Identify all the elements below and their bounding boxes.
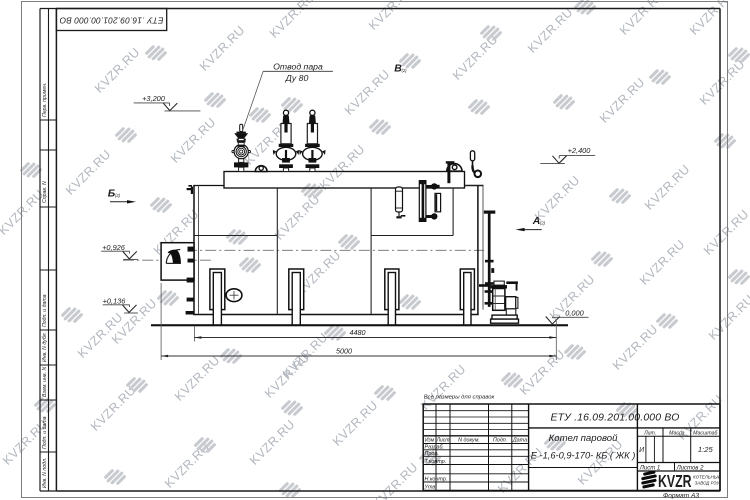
svg-text:KVZR.RU: KVZR.RU bbox=[63, 147, 114, 198]
svg-text:+0,926: +0,926 bbox=[102, 243, 126, 252]
svg-text:KVZR.RU: KVZR.RU bbox=[172, 353, 223, 404]
svg-text:Котел паровой: Котел паровой bbox=[549, 433, 618, 444]
svg-text:Т.контр.: Т.контр. bbox=[425, 459, 447, 465]
svg-text:KVZR: KVZR bbox=[658, 471, 692, 491]
svg-text:KVZR.RU: KVZR.RU bbox=[366, 0, 417, 33]
svg-text:Подп.: Подп. bbox=[493, 438, 507, 444]
svg-text:KVZR.RU: KVZR.RU bbox=[701, 207, 750, 258]
svg-text:+3,200: +3,200 bbox=[142, 94, 166, 103]
svg-text:(2): (2) bbox=[115, 193, 121, 198]
svg-text:KVZR.RU: KVZR.RU bbox=[342, 67, 393, 118]
svg-text:(2): (2) bbox=[540, 221, 546, 226]
svg-text:И: И bbox=[639, 447, 645, 454]
svg-text:Подп. и дата: Подп. и дата bbox=[42, 416, 48, 449]
svg-text:KVZR.RU: KVZR.RU bbox=[575, 437, 626, 488]
svg-text:KVZR.RU: KVZR.RU bbox=[525, 5, 576, 56]
svg-text:KVZR.RU: KVZR.RU bbox=[92, 45, 143, 96]
svg-text:KVZR.RU: KVZR.RU bbox=[247, 417, 298, 468]
svg-text:Н.контр.: Н.контр. bbox=[425, 477, 448, 483]
svg-text:Е -1,6-0,9-170- КБ ( ЖК ): Е -1,6-0,9-170- КБ ( ЖК ) bbox=[531, 451, 636, 461]
svg-text:5000: 5000 bbox=[336, 346, 352, 355]
svg-text:Перв. примен.: Перв. примен. bbox=[42, 83, 48, 117]
svg-text:KVZR.RU: KVZR.RU bbox=[330, 398, 381, 449]
svg-text:Справ. N: Справ. N bbox=[42, 181, 48, 203]
svg-text:Лит.: Лит. bbox=[643, 430, 656, 436]
svg-text:Лист 1: Лист 1 bbox=[639, 465, 660, 471]
svg-text:+0,136: +0,136 bbox=[103, 297, 127, 306]
svg-text:KVZR.RU: KVZR.RU bbox=[418, 362, 469, 413]
svg-text:Взам. инв. N: Взам. инв. N bbox=[42, 367, 48, 397]
svg-text:KVZR.RU: KVZR.RU bbox=[687, 0, 738, 38]
svg-text:КОТЕЛЬНЫЙ: КОТЕЛЬНЫЙ bbox=[693, 475, 721, 480]
svg-text:KVZR.RU: KVZR.RU bbox=[642, 162, 693, 213]
svg-text:(2): (2) bbox=[401, 68, 407, 73]
svg-text:Подп. и дата: Подп. и дата bbox=[42, 294, 48, 327]
svg-text:Ду 80: Ду 80 bbox=[285, 73, 309, 83]
svg-text:Масса: Масса bbox=[669, 430, 684, 436]
svg-text:KVZR.RU: KVZR.RU bbox=[597, 75, 648, 126]
svg-text:KVZR.RU: KVZR.RU bbox=[517, 347, 568, 398]
svg-text:KVZR.RU: KVZR.RU bbox=[272, 192, 323, 243]
svg-text:Дата: Дата bbox=[512, 438, 527, 444]
svg-text:KVZR.RU: KVZR.RU bbox=[197, 23, 248, 74]
svg-text:ЗАВОД РЭУ: ЗАВОД РЭУ bbox=[695, 481, 721, 486]
svg-text:Отвод пара: Отвод пара bbox=[273, 61, 323, 71]
svg-text:ЕТУ .16.09.201.00.000 ВО: ЕТУ .16.09.201.00.000 ВО bbox=[59, 15, 163, 25]
svg-text:Пров.: Пров. bbox=[425, 451, 439, 457]
svg-text:Изм: Изм bbox=[425, 438, 435, 444]
svg-text:4480: 4480 bbox=[350, 328, 366, 337]
svg-text:1:25: 1:25 bbox=[698, 445, 714, 454]
svg-text:KVZR.RU: KVZR.RU bbox=[610, 322, 661, 373]
svg-text:0,000: 0,000 bbox=[565, 308, 584, 317]
svg-text:Разраб.: Разраб. bbox=[425, 444, 445, 450]
svg-text:+2,400: +2,400 bbox=[568, 146, 592, 155]
svg-text:KVZR.RU: KVZR.RU bbox=[267, 0, 318, 41]
svg-text:KVZR.RU: KVZR.RU bbox=[706, 292, 750, 343]
svg-text:KVZR.RU: KVZR.RU bbox=[168, 115, 219, 166]
svg-text:KVZR.RU: KVZR.RU bbox=[370, 460, 421, 500]
svg-text:KVZR.RU: KVZR.RU bbox=[88, 383, 139, 434]
svg-text:KVZR.RU: KVZR.RU bbox=[317, 142, 368, 193]
svg-text:KVZR.RU: KVZR.RU bbox=[697, 57, 748, 108]
svg-text:Масштаб: Масштаб bbox=[693, 430, 718, 436]
svg-text:Лист: Лист bbox=[436, 438, 450, 444]
svg-text:Инв. N дубл.: Инв. N дубл. bbox=[42, 332, 48, 362]
svg-text:KVZR.RU: KVZR.RU bbox=[637, 237, 688, 288]
svg-text:Формат А3: Формат А3 bbox=[663, 493, 699, 500]
svg-text:Инв. N подл.: Инв. N подл. bbox=[42, 458, 48, 488]
svg-text:Все размеры для справок: Все размеры для справок bbox=[424, 395, 495, 401]
svg-text:N докум.: N докум. bbox=[458, 438, 480, 444]
svg-text:Утв.: Утв. bbox=[424, 485, 437, 491]
svg-text:ЕТУ .16.09.201.00.000 ВО: ЕТУ .16.09.201.00.000 ВО bbox=[550, 413, 679, 424]
svg-text:KVZR.RU: KVZR.RU bbox=[617, 0, 668, 38]
